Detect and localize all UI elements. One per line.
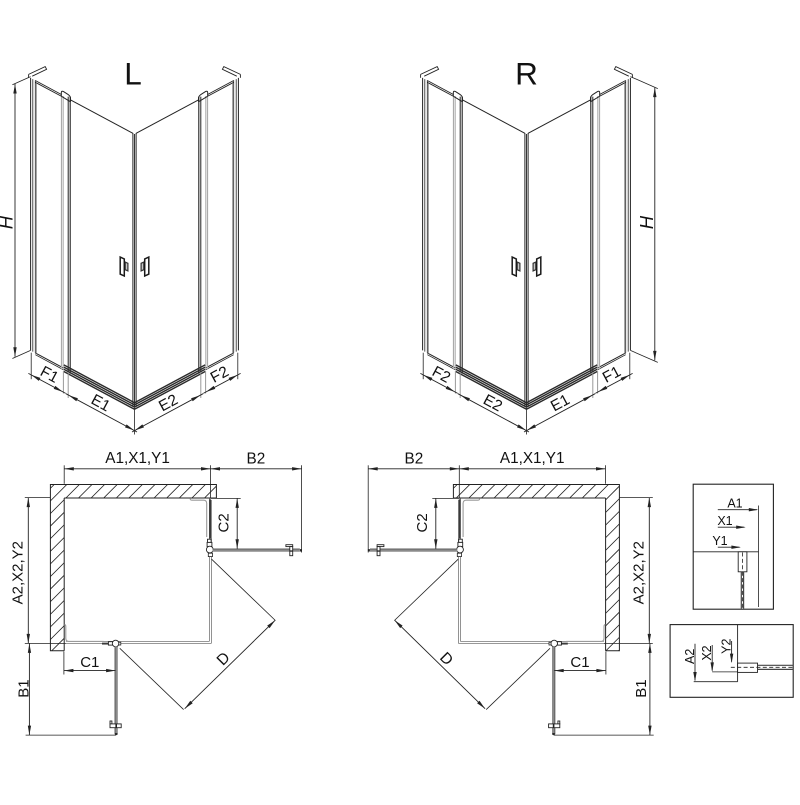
svg-text:B2: B2: [405, 451, 424, 468]
svg-text:A1,X1,Y1: A1,X1,Y1: [500, 450, 565, 467]
svg-text:Y2: Y2: [720, 639, 734, 654]
svg-text:H: H: [636, 215, 657, 229]
svg-text:Y1: Y1: [712, 534, 727, 548]
svg-text:C2: C2: [215, 513, 232, 532]
svg-text:B2: B2: [247, 451, 266, 468]
svg-text:A1: A1: [727, 496, 742, 510]
svg-text:C1: C1: [570, 654, 589, 671]
svg-text:X1: X1: [717, 514, 732, 528]
svg-text:C2: C2: [414, 513, 431, 532]
svg-text:B1: B1: [633, 679, 650, 697]
svg-text:C1: C1: [80, 654, 99, 671]
svg-text:H: H: [0, 215, 16, 229]
svg-text:A2,X2,Y2: A2,X2,Y2: [9, 541, 26, 604]
svg-text:A2,X2,Y2: A2,X2,Y2: [630, 541, 647, 604]
svg-text:A2: A2: [683, 649, 697, 664]
svg-text:L: L: [124, 55, 142, 91]
svg-text:B1: B1: [16, 679, 33, 697]
svg-text:X2: X2: [700, 645, 714, 660]
svg-text:R: R: [515, 55, 538, 91]
svg-text:A1,X1,Y1: A1,X1,Y1: [105, 450, 170, 467]
